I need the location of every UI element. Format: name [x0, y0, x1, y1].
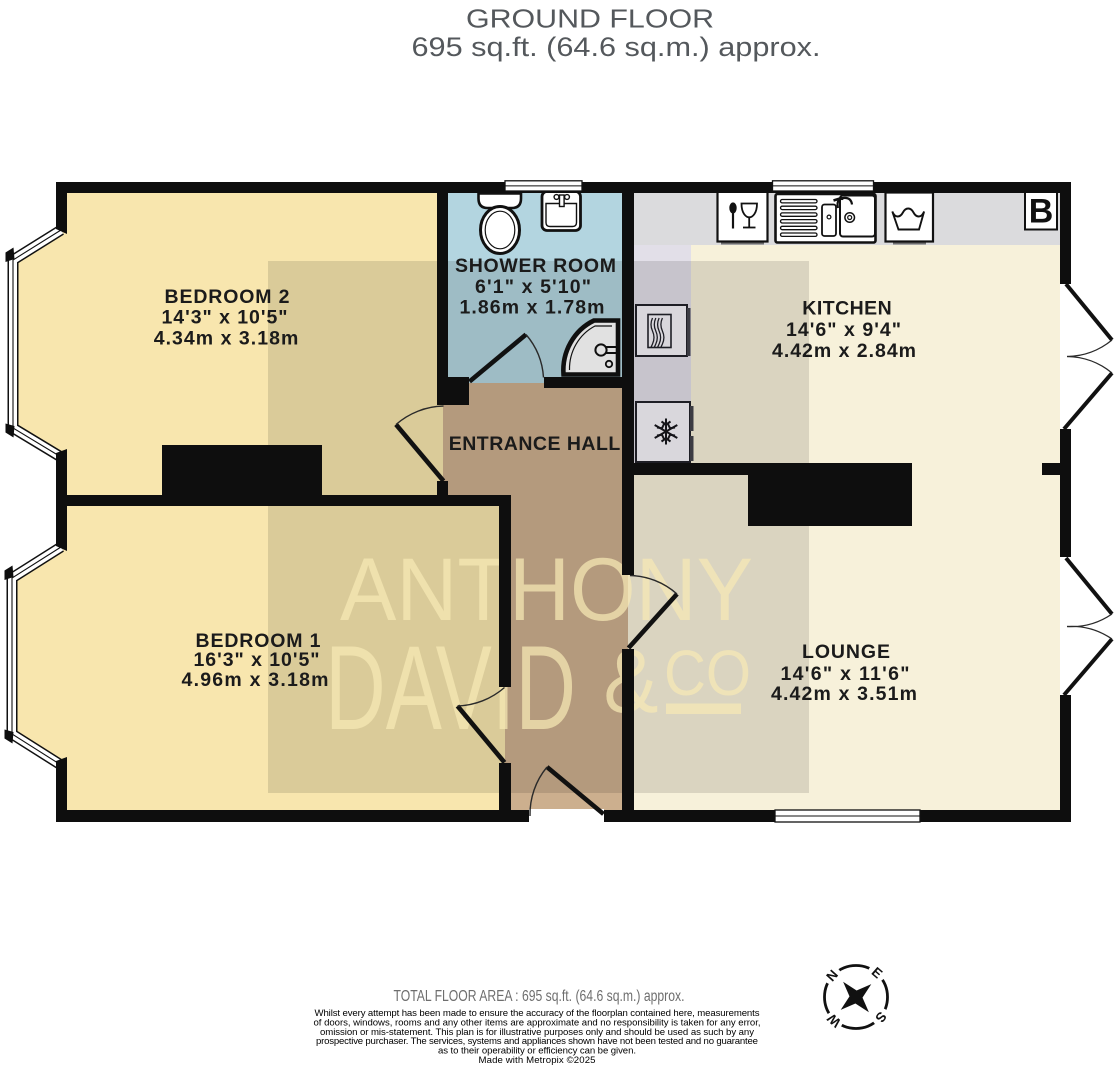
svg-text:4.42m x 2.84m: 4.42m x 2.84m	[772, 340, 916, 362]
svg-text:LOUNGE: LOUNGE	[802, 641, 890, 663]
svg-text:ENTRANCE HALL: ENTRANCE HALL	[449, 433, 621, 455]
svg-text:6'1" x 5'10": 6'1" x 5'10"	[475, 276, 591, 298]
svg-text:14'6" x 11'6": 14'6" x 11'6"	[781, 663, 910, 685]
svg-text:14'6" x 9'4": 14'6" x 9'4"	[786, 319, 901, 341]
svg-text:B: B	[1029, 193, 1054, 231]
svg-text:SHOWER ROOM: SHOWER ROOM	[455, 255, 616, 277]
svg-text:TOTAL FLOOR AREA : 695 sq.ft.: TOTAL FLOOR AREA : 695 sq.ft. (64.6 sq.m…	[394, 988, 685, 1005]
svg-text:16'3" x 10'5": 16'3" x 10'5"	[194, 649, 320, 671]
svg-text:695 sq.ft. (64.6 sq.m.) approx: 695 sq.ft. (64.6 sq.m.) approx.	[412, 32, 821, 62]
svg-text:4.42m x 3.51m: 4.42m x 3.51m	[771, 683, 917, 705]
svg-text:Made with Metropix ©2025: Made with Metropix ©2025	[479, 1055, 596, 1066]
svg-text:1.86m x 1.78m: 1.86m x 1.78m	[460, 296, 605, 318]
svg-text:KITCHEN: KITCHEN	[802, 298, 891, 320]
svg-text:4.96m x 3.18m: 4.96m x 3.18m	[182, 669, 329, 691]
svg-text:14'3" x 10'5": 14'3" x 10'5"	[162, 307, 288, 329]
svg-text:CO: CO	[664, 637, 751, 709]
svg-text:BEDROOM 2: BEDROOM 2	[165, 286, 290, 308]
svg-text:4.34m x 3.18m: 4.34m x 3.18m	[154, 328, 299, 350]
svg-text:DAVID: DAVID	[325, 621, 576, 755]
svg-text:GROUND FLOOR: GROUND FLOOR	[466, 6, 714, 34]
